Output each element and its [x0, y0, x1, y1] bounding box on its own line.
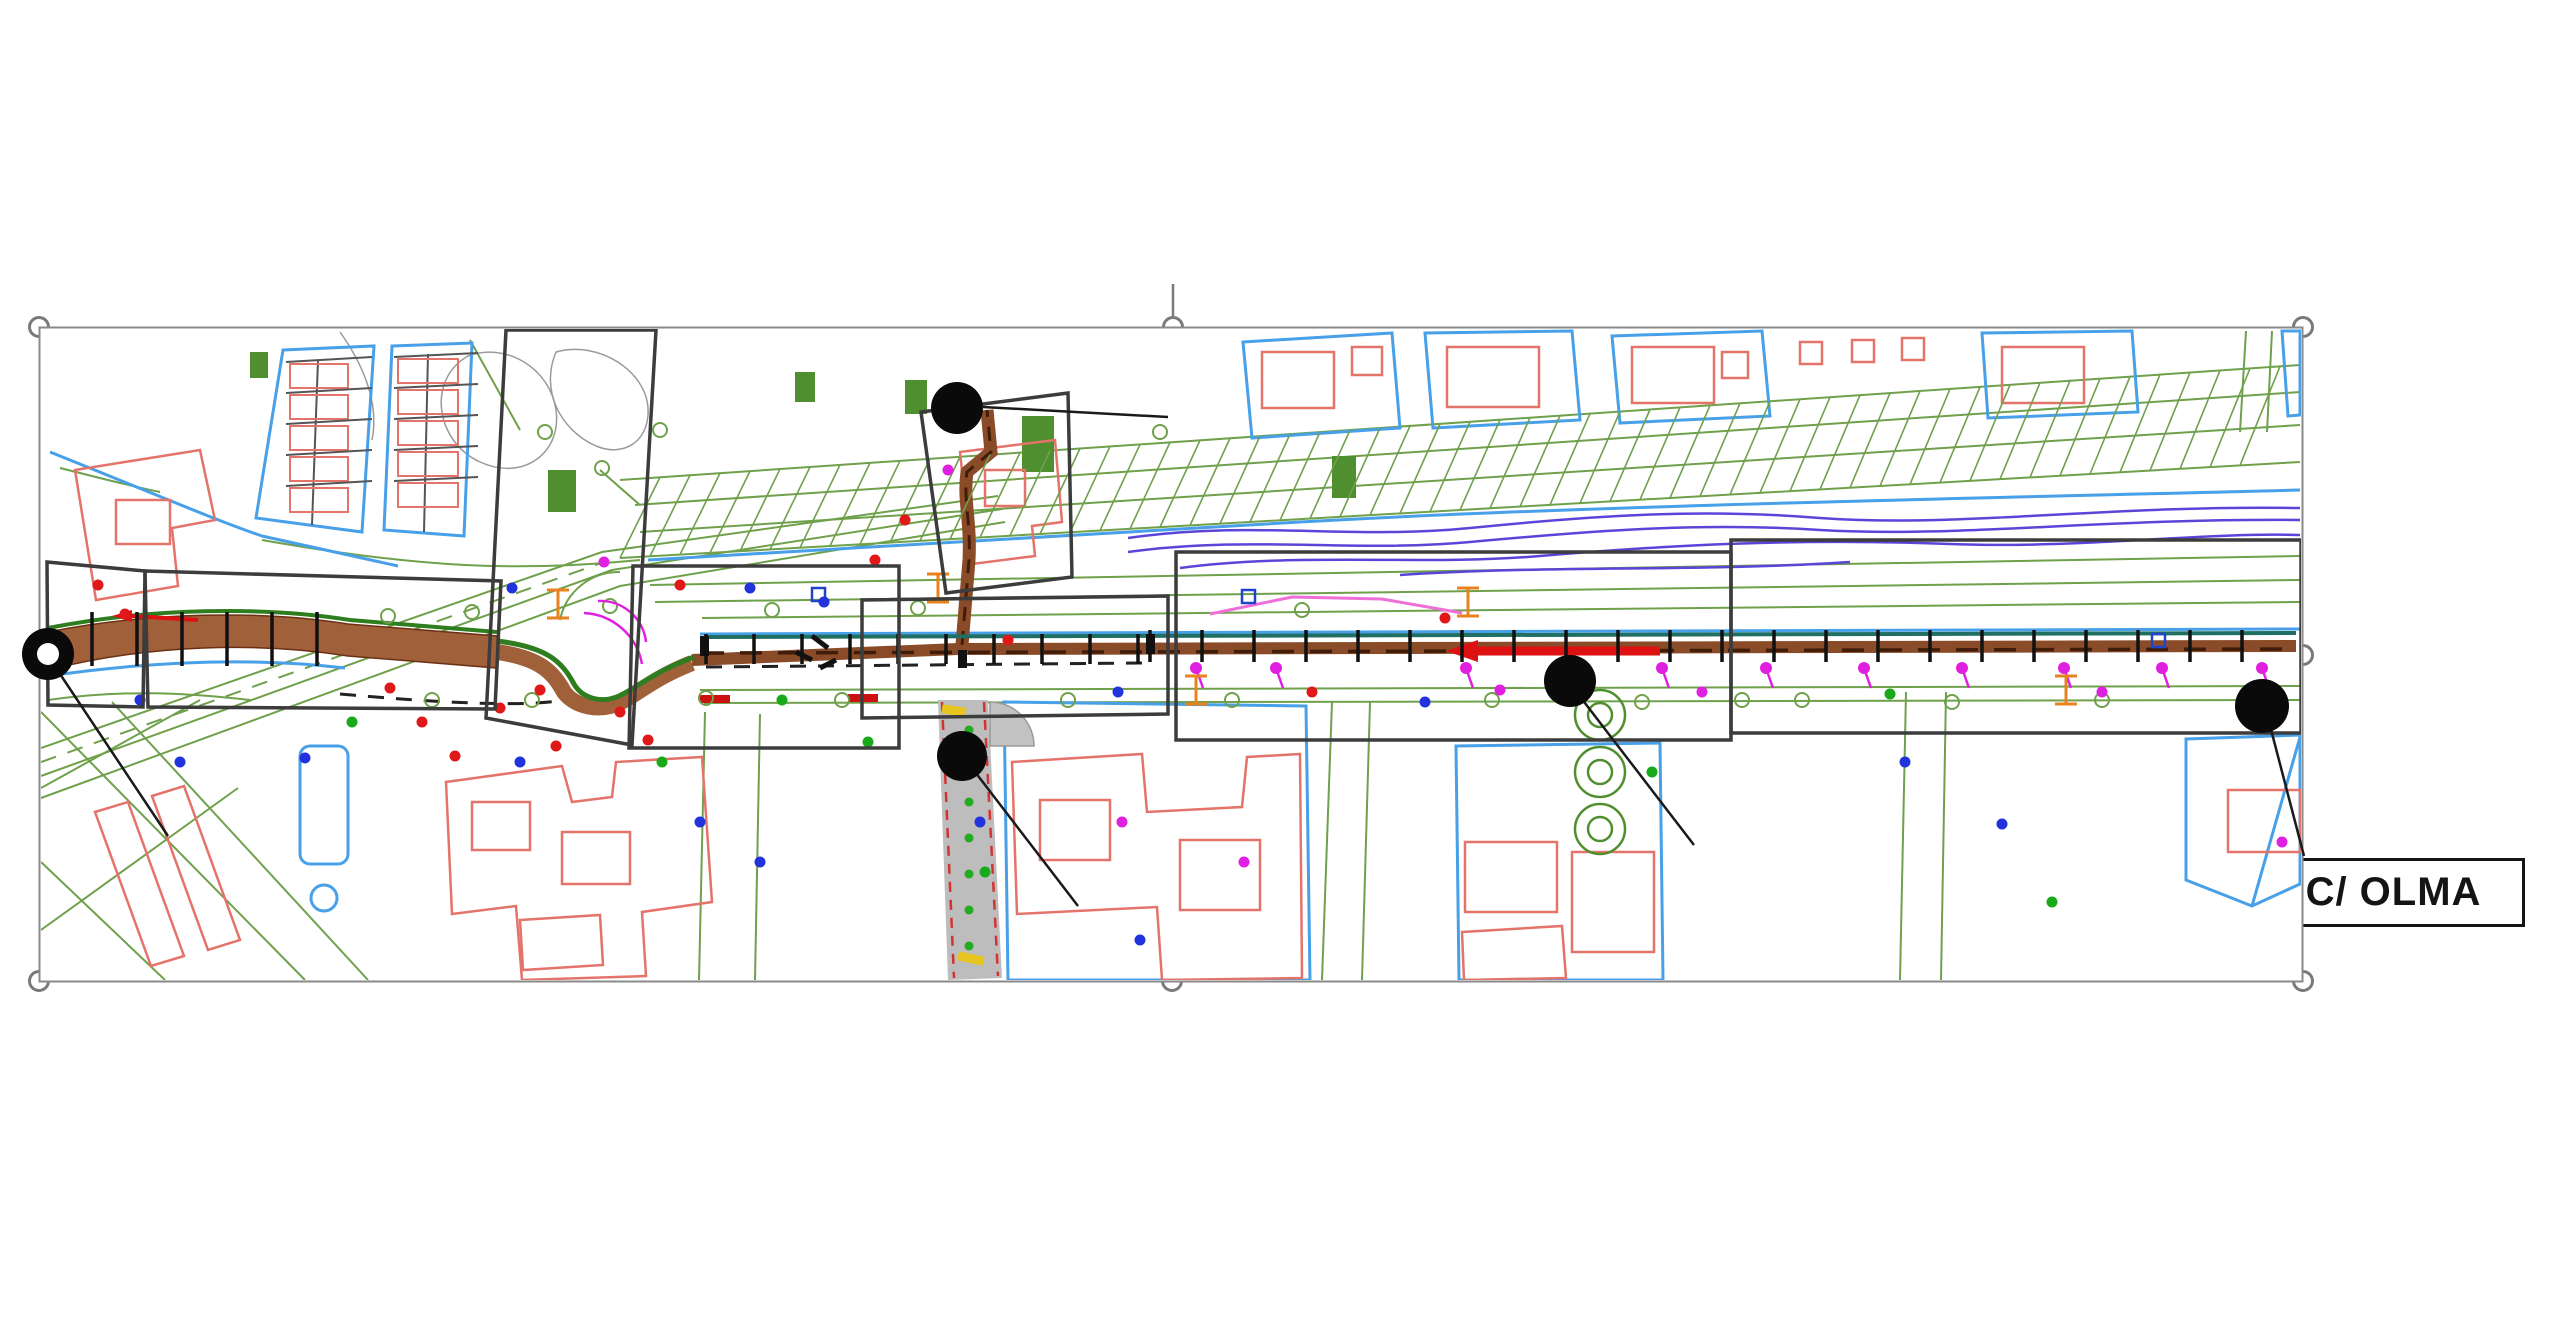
map-plan-image[interactable]	[0, 0, 2560, 1344]
slide-canvas: 12344b567 C/ CANALAVDA GIJÓNC/ MIESESC/ …	[0, 0, 2560, 1344]
